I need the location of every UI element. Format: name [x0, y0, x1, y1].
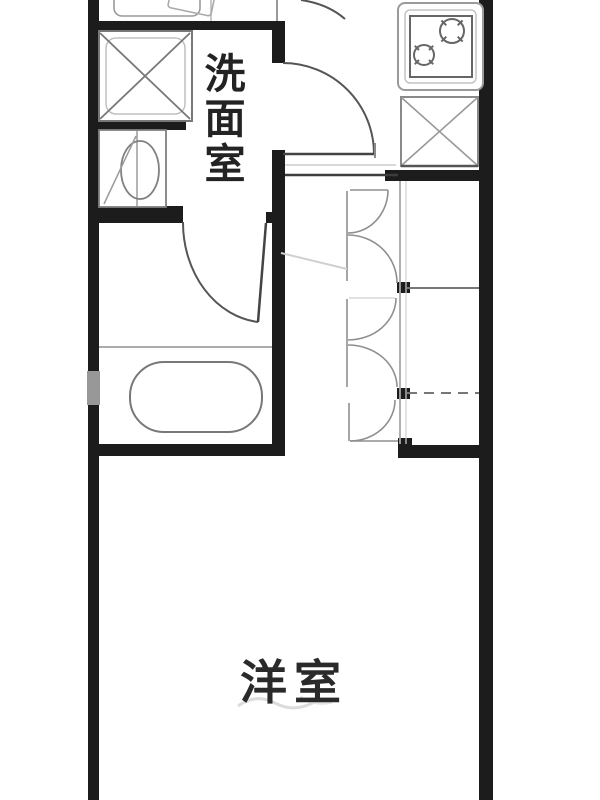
- wall-partition: [97, 121, 186, 130]
- bathtub-outline: [130, 362, 262, 432]
- closet-bifold-doors: [347, 181, 406, 444]
- floor-plan: 洗 面 室 洋室: [0, 0, 600, 800]
- wall-corridor-lower: [272, 150, 285, 456]
- washroom-label-char: 洗: [205, 52, 246, 97]
- toilet-box: [99, 130, 166, 207]
- bifold-arc: [350, 400, 395, 441]
- vanity-counter-partial: [114, 0, 200, 16]
- top-cutoff-fixtures: [114, 0, 216, 16]
- vanity-item-partial: [168, 0, 217, 16]
- closet-shelves: [407, 288, 479, 393]
- wall-bath-top-right: [266, 212, 285, 223]
- watermark-remnants: [87, 253, 347, 708]
- bathroom-door: [183, 222, 266, 322]
- toilet: [99, 130, 166, 207]
- wall-right: [479, 0, 493, 800]
- washroom-door: [283, 63, 375, 158]
- wall-closet-top: [385, 170, 493, 181]
- washroom-label-char: 室: [205, 142, 246, 187]
- watermark-stroke: [281, 253, 347, 269]
- bifold-arc: [348, 298, 396, 340]
- bifold-arc: [348, 235, 397, 283]
- wall-top: [88, 21, 285, 30]
- wall-room-top-right: [398, 445, 493, 458]
- refrigerator-space: [401, 97, 478, 166]
- bifold-arc: [348, 345, 397, 387]
- washroom-label-char: 面: [205, 97, 246, 142]
- bathroom-door-leaf: [258, 223, 266, 322]
- bathroom-door-arc: [183, 222, 258, 322]
- wall-toilet-stub: [99, 206, 183, 223]
- gas-stove-icon: [398, 3, 483, 90]
- watermark-wall-smudge: [87, 371, 100, 405]
- wall-corridor-upper: [272, 21, 285, 63]
- room-label-washroom: 洗 面 室: [200, 52, 250, 187]
- wall-room-top-left: [88, 444, 285, 456]
- washroom-door-arc: [283, 63, 374, 154]
- washing-machine-pan: [99, 31, 192, 121]
- entrance-door-arc-path: [301, 0, 345, 19]
- room-label-western-room: 洋室: [240, 644, 348, 713]
- bifold-arc: [348, 190, 388, 233]
- entrance-door-arc: [301, 0, 345, 19]
- bathtub: [130, 362, 262, 432]
